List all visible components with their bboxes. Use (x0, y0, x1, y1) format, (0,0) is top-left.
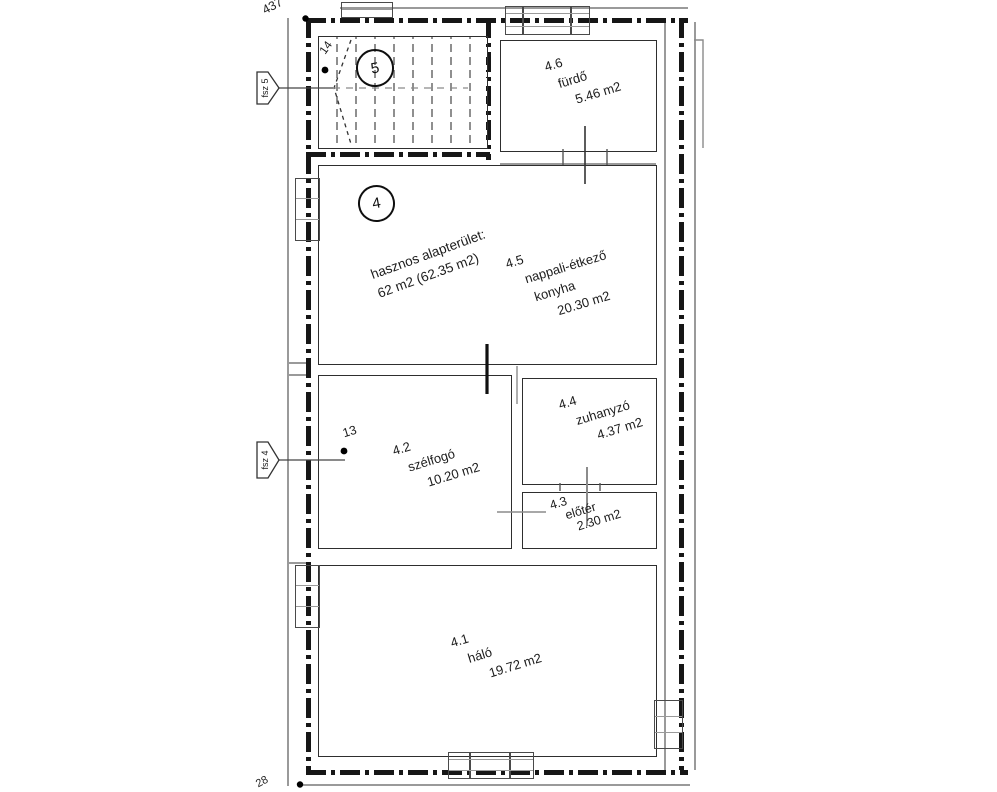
construction-line-right-outer (694, 22, 696, 770)
dimension-top: 437 (260, 0, 285, 17)
section-tag-upper (257, 72, 279, 104)
floor-plan-canvas: fsz 5 fsz 4 5 4 437 28 14 13 4.6 fürdő 5… (0, 0, 997, 792)
window-left-living (295, 178, 320, 241)
exterior-wall-top (306, 18, 688, 23)
section-tag-lower (257, 442, 279, 478)
window-right-bedroom (654, 700, 683, 749)
window-top-small (341, 2, 393, 18)
section-tag-text: fsz 5 fsz 4 (260, 78, 270, 469)
section-tag-lower-label: fsz 4 (260, 450, 270, 469)
wall-junction-line-1 (287, 362, 306, 364)
wall-junction-line-3 (287, 562, 306, 564)
exterior-wall-right (679, 18, 684, 775)
window-left-bedroom (295, 565, 320, 628)
wall-junction-line-2 (287, 374, 306, 376)
stairwell (318, 36, 488, 149)
unit-circle-5-number: 5 (369, 59, 380, 77)
section-tag-upper-label: fsz 5 (260, 78, 270, 97)
section-tags (257, 72, 279, 478)
unit-circle-4-number: 4 (371, 194, 382, 212)
window-top (505, 6, 590, 35)
construction-line-bottom (300, 784, 690, 786)
window-bottom (448, 752, 534, 779)
construction-line-left (287, 18, 289, 786)
wall-under-stairs (306, 152, 490, 157)
construction-line-right-inner (664, 22, 666, 770)
dimension-bottom: 28 (254, 774, 270, 790)
exterior-wall-left (306, 18, 311, 775)
